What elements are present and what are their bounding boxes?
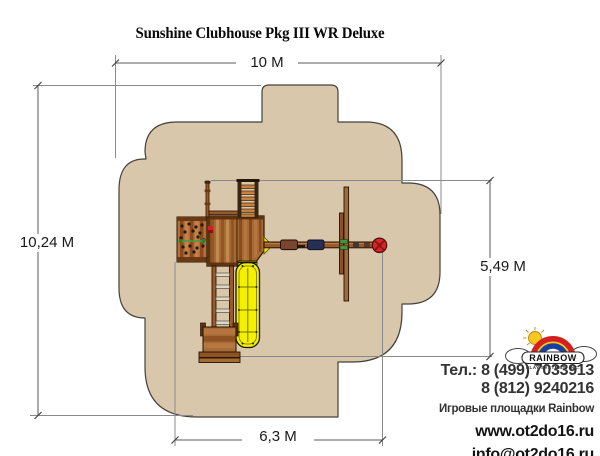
climbing-wall (177, 217, 207, 262)
phone-number-2: 8 (812) 9240216 (439, 380, 594, 398)
ground-platform (199, 323, 240, 363)
dimension-label-structure-height: 5,49 M (460, 258, 546, 276)
dimension-label-zone-width: 10 M (236, 54, 298, 72)
tire-swing (372, 238, 386, 252)
flag-marker (208, 226, 213, 230)
page-title: Sunshine Clubhouse Pkg III WR Deluxe (74, 25, 446, 43)
safety-zone-shape (119, 85, 440, 417)
website-url: www.ot2do16.ru (439, 423, 594, 441)
tower-deck (207, 216, 264, 266)
contact-block: Тел.: 8 (499) 7033913 8 (812) 9240216 Иг… (439, 362, 594, 456)
phone-number-1: Тел.: 8 (499) 7033913 (439, 362, 594, 380)
playground-plan-page: Sunshine Clubhouse Pkg III WR Deluxe 10 … (0, 0, 600, 456)
access-ladder (237, 179, 260, 218)
swing-seat-right (308, 240, 325, 250)
dimension-label-structure-width: 6,3 M (242, 428, 314, 446)
company-tagline: Игровые площадки Rainbow (439, 400, 594, 418)
tube-slide (236, 261, 260, 348)
trapeze-bar (298, 245, 305, 248)
swing-seat-left (281, 240, 298, 250)
email-address: info@ot2do16.ru (439, 446, 594, 456)
dimension-label-zone-height: 10,24 M (4, 234, 90, 252)
